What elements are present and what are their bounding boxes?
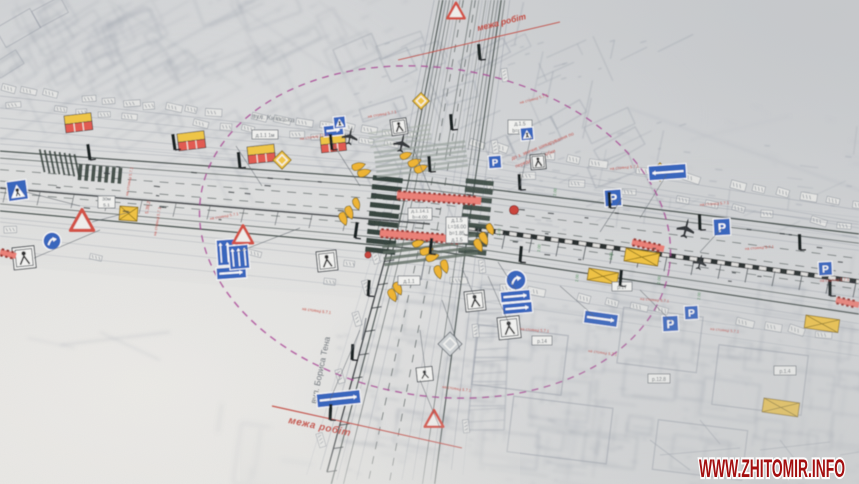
- svg-text:WWW.ZHITOMIR.INFO: WWW.ZHITOMIR.INFO: [699, 455, 845, 483]
